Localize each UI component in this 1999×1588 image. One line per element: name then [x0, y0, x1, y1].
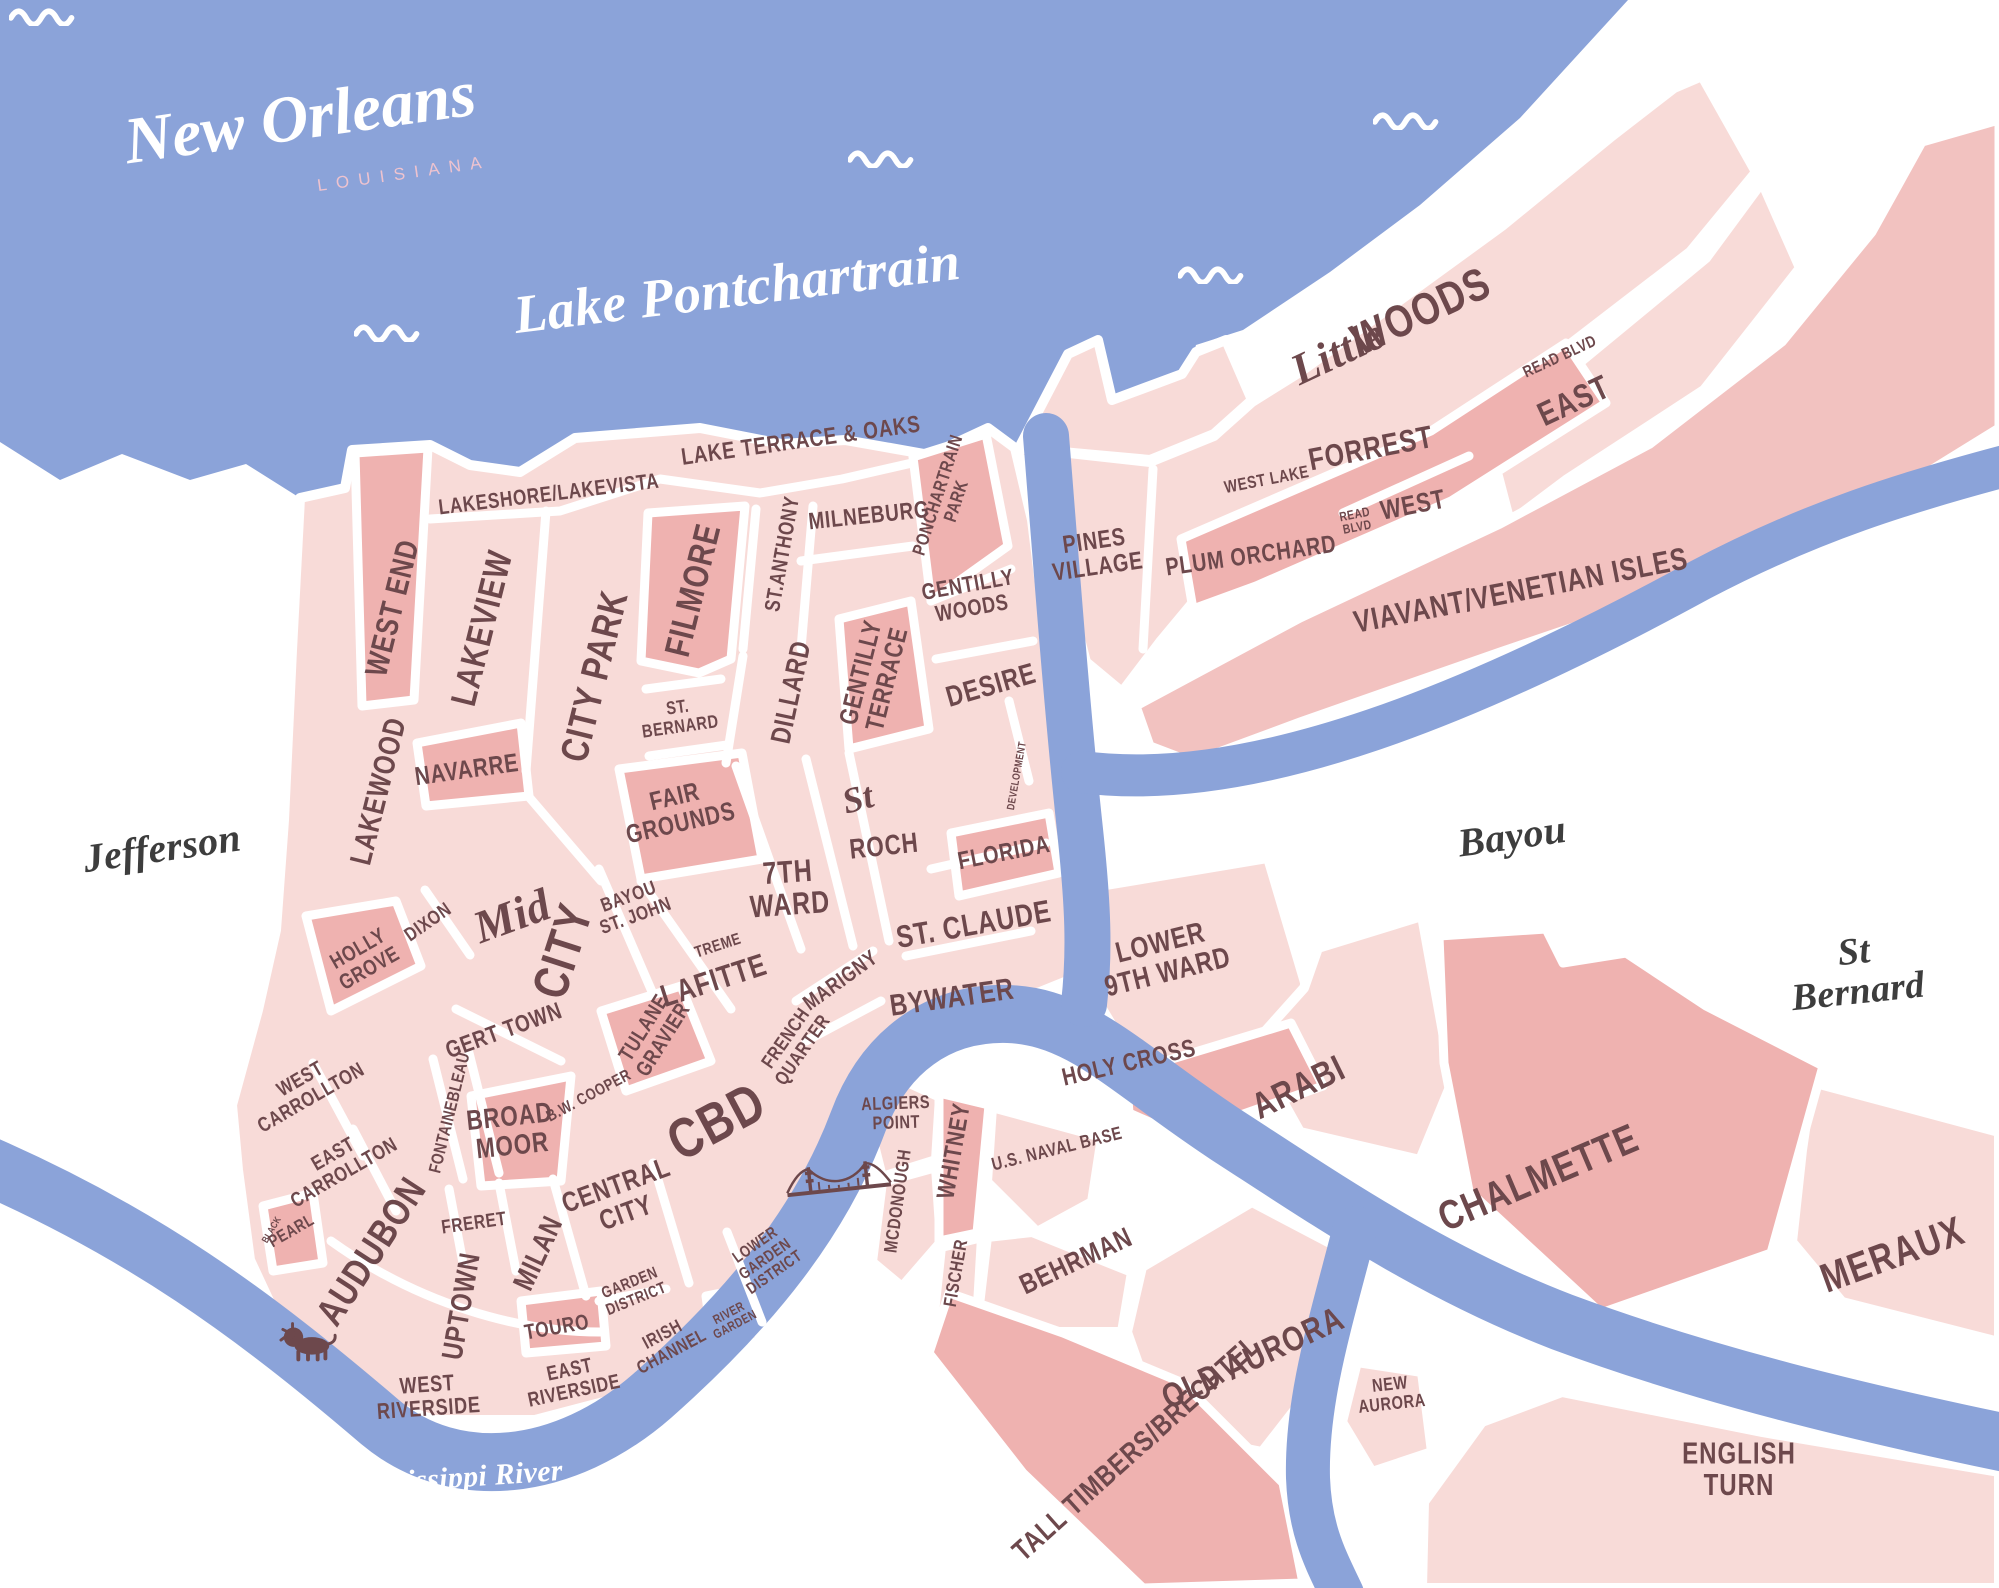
new-orleans-map: Lake PontchartrainMississippi RiverJeffe… [0, 0, 1999, 1588]
map-artwork [0, 0, 1999, 1588]
